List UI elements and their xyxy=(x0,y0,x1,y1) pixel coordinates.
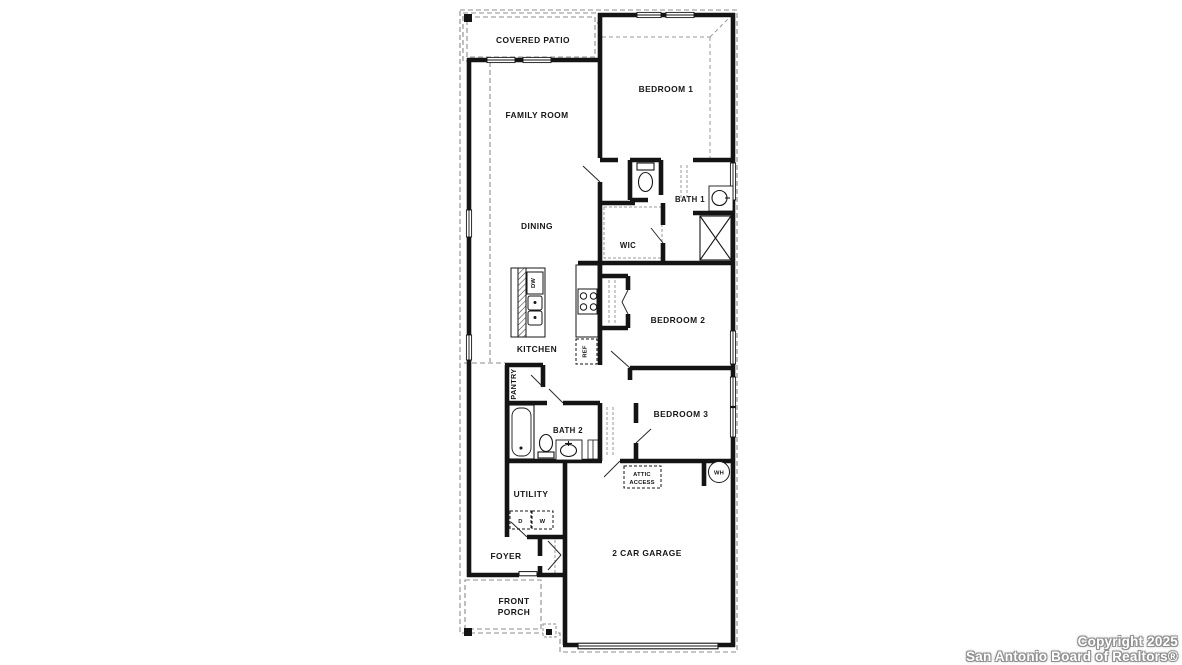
washer-label: W xyxy=(540,519,546,525)
bath2-sink-fixture xyxy=(556,440,582,460)
floorplan-page: COVERED PATIO FAMILY ROOM BEDROOM 1 BATH… xyxy=(0,0,1182,665)
dryer-label: D xyxy=(518,519,522,525)
island-bar-hatch xyxy=(518,268,526,337)
front-porch-label-line2: PORCH xyxy=(498,607,531,617)
dining-label: DINING xyxy=(521,221,553,231)
porch-post-left xyxy=(464,628,472,636)
shower-fixture xyxy=(700,216,731,260)
front-porch-label-line1: FRONT xyxy=(498,596,530,606)
patio-post xyxy=(464,14,472,22)
covered-patio-label: COVERED PATIO xyxy=(496,35,570,45)
bedroom2-label: BEDROOM 2 xyxy=(651,315,706,325)
window-bedroom1-left xyxy=(637,12,661,17)
water-heater-label: WH xyxy=(714,471,724,477)
attic-access-label-line1: ATTIC xyxy=(633,472,651,478)
pantry-label: PANTRY xyxy=(509,368,518,399)
garage-label: 2 CAR GARAGE xyxy=(612,548,682,558)
refrigerator-label: REF xyxy=(583,345,589,357)
window-bedroom3-east xyxy=(730,377,735,437)
toilet-1-fixture xyxy=(637,163,654,192)
bath1-sink-fixture xyxy=(709,186,733,211)
wic-label: WIC xyxy=(620,241,636,250)
copyright-watermark: Copyright 2025 San Antonio Board of Real… xyxy=(966,634,1178,664)
foyer-label: FOYER xyxy=(490,551,521,561)
window-bedroom2-east xyxy=(730,331,735,364)
linen-shelves xyxy=(588,440,598,459)
window-bedroom1-right xyxy=(666,12,694,17)
kitchen-label: KITCHEN xyxy=(517,344,557,354)
bath1-label: BATH 1 xyxy=(675,195,705,204)
utility-label: UTILITY xyxy=(514,489,549,499)
window-family-1 xyxy=(487,57,515,62)
cooktop-fixture xyxy=(578,289,597,314)
porch-post-right xyxy=(546,629,552,635)
window-family-2 xyxy=(523,57,551,62)
toilet-2-fixture xyxy=(538,435,554,459)
utility-appliances xyxy=(510,511,553,529)
bathtub-fixture xyxy=(509,405,534,459)
dishwasher-label: DW xyxy=(531,278,537,288)
kitchen-sink-fixture xyxy=(528,296,542,325)
front-door xyxy=(519,572,537,576)
floor-plan-svg: COVERED PATIO FAMILY ROOM BEDROOM 1 BATH… xyxy=(0,0,1182,665)
attic-access-label-line2: ACCESS xyxy=(629,480,654,486)
copyright-line2: San Antonio Board of Realtors® xyxy=(966,649,1178,664)
kitchen-island xyxy=(511,268,545,337)
garage-door xyxy=(578,643,718,649)
family-room-label: FAMILY ROOM xyxy=(505,110,568,120)
bath2-label: BATH 2 xyxy=(553,426,583,435)
window-familyroom-west-1 xyxy=(466,210,471,237)
copyright-line1: Copyright 2025 xyxy=(966,634,1178,649)
bedroom1-label: BEDROOM 1 xyxy=(639,84,694,94)
bedroom3-label: BEDROOM 3 xyxy=(654,409,709,419)
window-familyroom-west-2 xyxy=(466,335,471,360)
